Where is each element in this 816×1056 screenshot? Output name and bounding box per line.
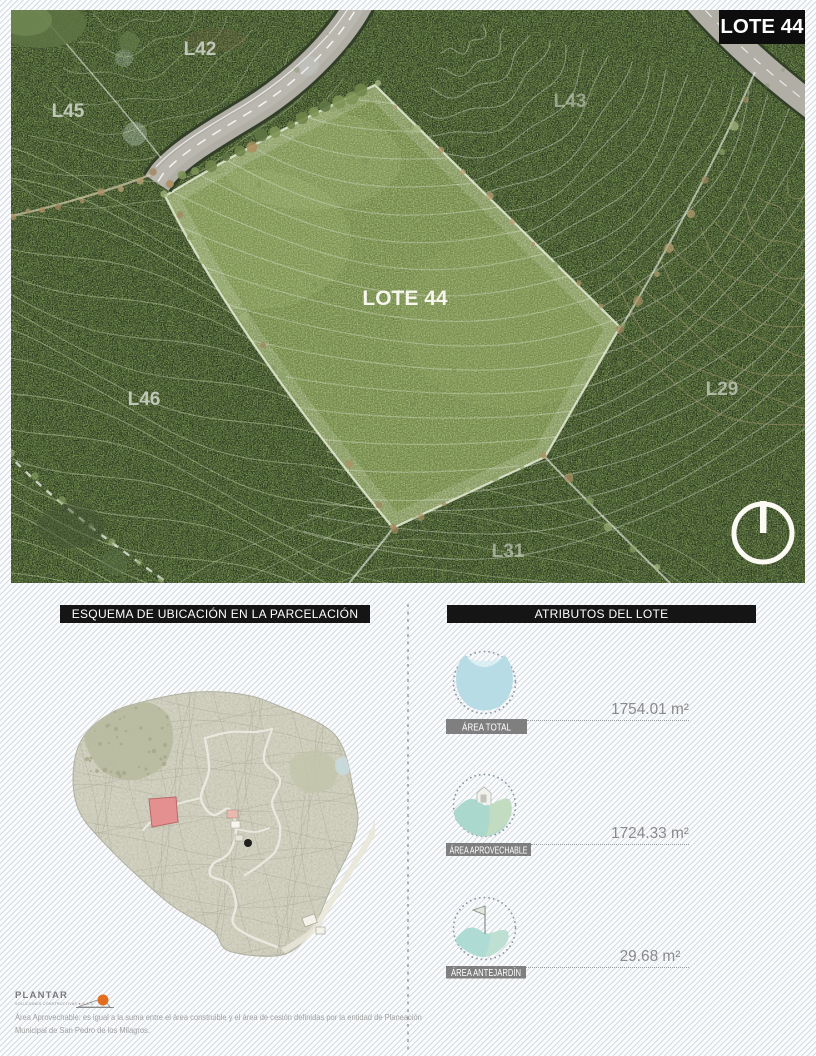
svg-text:L46: L46: [128, 389, 161, 410]
svg-text:L29: L29: [706, 379, 739, 400]
svg-text:ÁREA TOTAL: ÁREA TOTAL: [462, 720, 511, 733]
svg-text:L43: L43: [554, 91, 587, 112]
svg-text:ÁREA APROVECHABLE: ÁREA APROVECHABLE: [450, 843, 528, 856]
svg-text:L45: L45: [52, 101, 85, 122]
svg-text:ÁREA ANTEJARDÍN: ÁREA ANTEJARDÍN: [451, 966, 521, 979]
svg-text:L31: L31: [492, 541, 525, 562]
svg-text:LOTE 44: LOTE 44: [362, 287, 448, 310]
svg-text:L42: L42: [184, 39, 217, 60]
